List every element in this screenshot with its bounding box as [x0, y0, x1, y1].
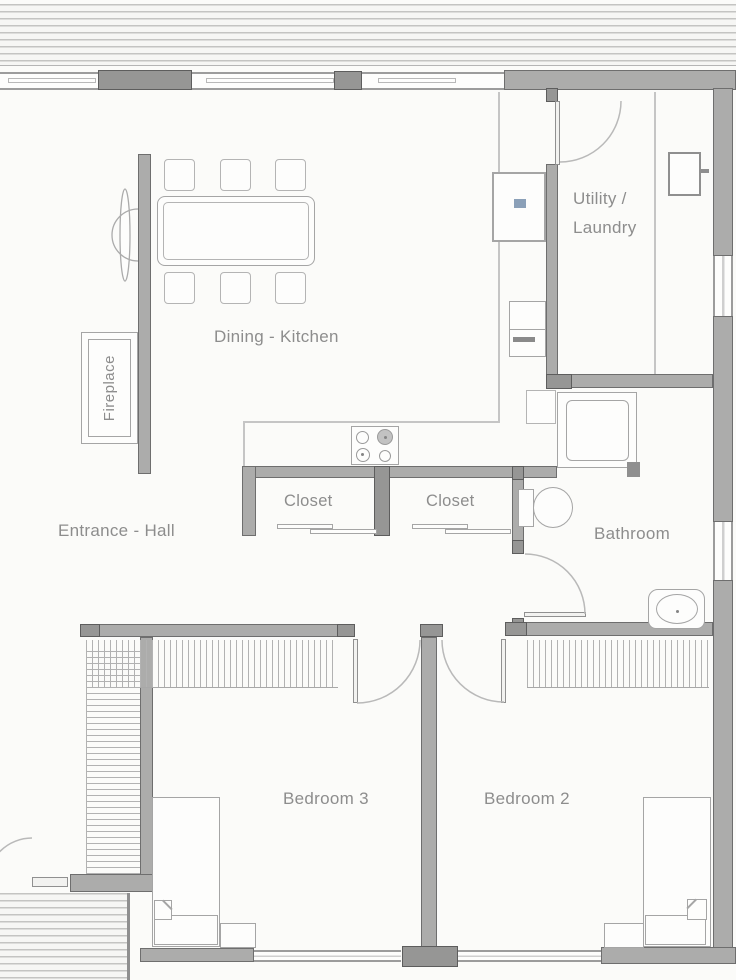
- washer-handle: [699, 169, 709, 173]
- right-exterior-wall: [713, 88, 733, 256]
- door-jamb: [546, 88, 558, 102]
- faucet: [513, 337, 535, 342]
- wall-pier: [402, 946, 458, 967]
- kitchen-sink-unit: [509, 329, 546, 357]
- window: [713, 522, 733, 580]
- bedroom2-label: Bedroom 2: [484, 789, 570, 809]
- closet-sliding-door: [310, 529, 377, 534]
- window: [713, 256, 733, 316]
- shower-tray: [566, 400, 629, 461]
- door-leaf: [501, 639, 506, 703]
- dining-kitchen-label: Dining - Kitchen: [214, 327, 339, 347]
- dining-table-top: [163, 202, 309, 260]
- right-exterior-wall: [713, 316, 733, 522]
- door-swing-arc: [525, 554, 585, 614]
- door-leaf: [353, 639, 358, 703]
- kitchen-counter-line: [243, 421, 245, 467]
- door-swing-arc: [442, 640, 504, 702]
- closet-wall: [242, 466, 256, 536]
- top-exterior-wall-thick: [504, 70, 736, 90]
- closet-divider-wall: [374, 466, 390, 536]
- window: [378, 78, 456, 83]
- kitchen-south-wall: [242, 466, 557, 478]
- bottom-exterior-wall: [140, 948, 254, 962]
- entrance-corner-wall: [70, 874, 153, 892]
- wall-sconce-arc: [112, 209, 138, 261]
- wardrobe-rail: [527, 640, 709, 688]
- dining-chair: [275, 272, 306, 304]
- right-exterior-wall: [713, 580, 733, 964]
- door-swing-arc: [560, 101, 621, 162]
- kitchen-counter-line: [243, 421, 500, 423]
- dining-chair: [220, 159, 251, 191]
- entrance-door-leaf: [32, 877, 68, 887]
- bedroom-top-wall: [80, 624, 355, 637]
- nightstand: [220, 923, 256, 948]
- nightstand: [604, 923, 644, 948]
- toilet-bowl: [533, 487, 573, 528]
- door-leaf: [524, 612, 586, 617]
- window: [254, 950, 401, 962]
- pillow: [687, 899, 707, 920]
- utility-room-label: Utility / Laundry: [573, 184, 637, 242]
- dining-chair: [164, 159, 195, 191]
- kitchen-sink-unit: [509, 301, 546, 330]
- wall-junction: [627, 462, 640, 477]
- door-jamb: [512, 540, 524, 554]
- door-swing-arc: [357, 640, 420, 703]
- bathroom-cabinet: [526, 390, 556, 424]
- closet-sliding-door: [445, 529, 511, 534]
- kitchen-counter-line: [498, 92, 500, 422]
- sliding-door-panel: [334, 71, 362, 90]
- utility-label-line2: Laundry: [573, 213, 637, 242]
- stove-burner: [356, 431, 369, 444]
- top-deck-stripes: [0, 4, 736, 66]
- bottom-exterior-wall: [601, 947, 736, 964]
- dining-chair: [220, 272, 251, 304]
- entrance-hall-label: Entrance - Hall: [58, 521, 175, 541]
- stove-burner-dot: [361, 453, 364, 456]
- wall-junction: [512, 466, 524, 480]
- utility-counter-line: [654, 92, 656, 374]
- window: [206, 78, 334, 83]
- floor-plan: Fireplace Utility / Laund: [0, 0, 736, 980]
- fireplace-label: Fireplace: [101, 355, 118, 421]
- door-jamb: [337, 624, 355, 637]
- refrigerator-mark: [514, 199, 526, 208]
- door-jamb: [420, 624, 443, 637]
- dining-chair: [164, 272, 195, 304]
- wardrobe-rail: [86, 648, 140, 874]
- pillow: [154, 900, 172, 920]
- terrace-stripes: [0, 893, 130, 980]
- closet-right-label: Closet: [426, 492, 475, 511]
- bedroom-divider-wall: [421, 637, 437, 948]
- window: [8, 78, 96, 83]
- closet-left-label: Closet: [284, 492, 333, 511]
- dining-chair: [275, 159, 306, 191]
- stove-burner-dot: [384, 436, 387, 439]
- utility-left-wall: [546, 164, 558, 382]
- washer: [668, 152, 701, 196]
- stove-burner: [379, 450, 391, 462]
- fireplace-inner: Fireplace: [88, 339, 131, 437]
- toilet-tank: [518, 489, 534, 527]
- bathroom-label: Bathroom: [594, 524, 670, 544]
- bedroom3-label: Bedroom 3: [283, 789, 369, 809]
- door-jamb: [505, 622, 527, 636]
- wall-junction: [80, 624, 100, 637]
- wall-junction: [546, 374, 572, 389]
- fireplace-wall: [138, 154, 151, 474]
- drain-dot: [676, 610, 679, 613]
- door-leaf: [555, 101, 560, 165]
- bathroom-sink-basin: [656, 594, 698, 624]
- wall-sconce: [120, 189, 130, 281]
- sliding-door-panel: [98, 70, 192, 90]
- door-swing-arc: [0, 838, 32, 883]
- window: [458, 950, 602, 962]
- utility-label-line1: Utility /: [573, 184, 637, 213]
